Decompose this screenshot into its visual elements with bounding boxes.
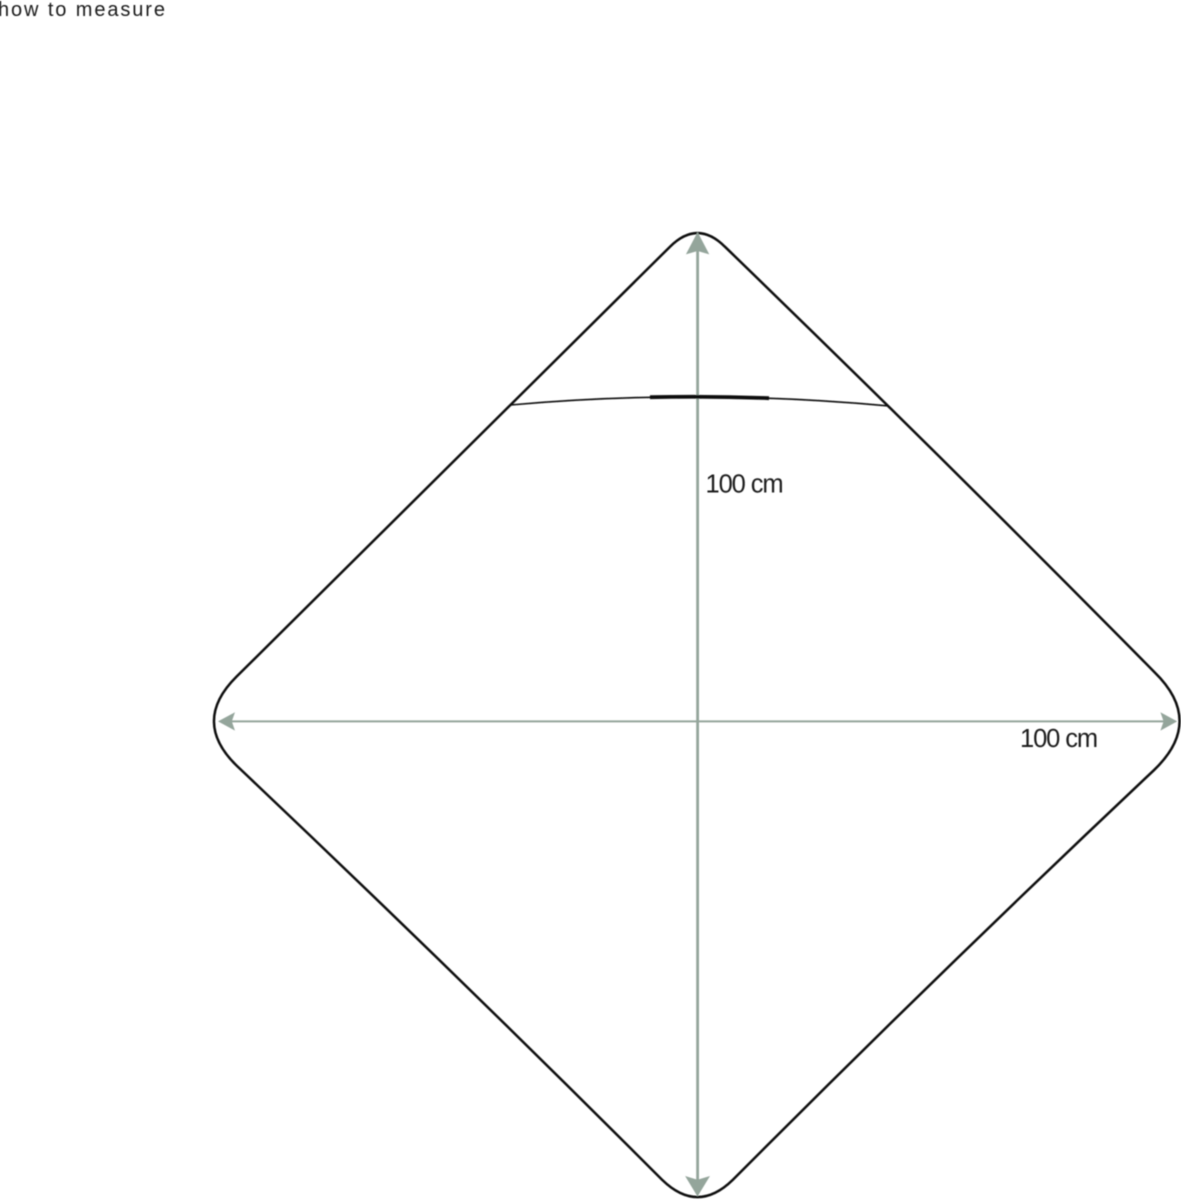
svg-text:100 cm: 100 cm bbox=[1020, 725, 1097, 753]
svg-text:100 cm: 100 cm bbox=[706, 471, 783, 499]
svg-text:how to measure: how to measure bbox=[0, 0, 167, 21]
